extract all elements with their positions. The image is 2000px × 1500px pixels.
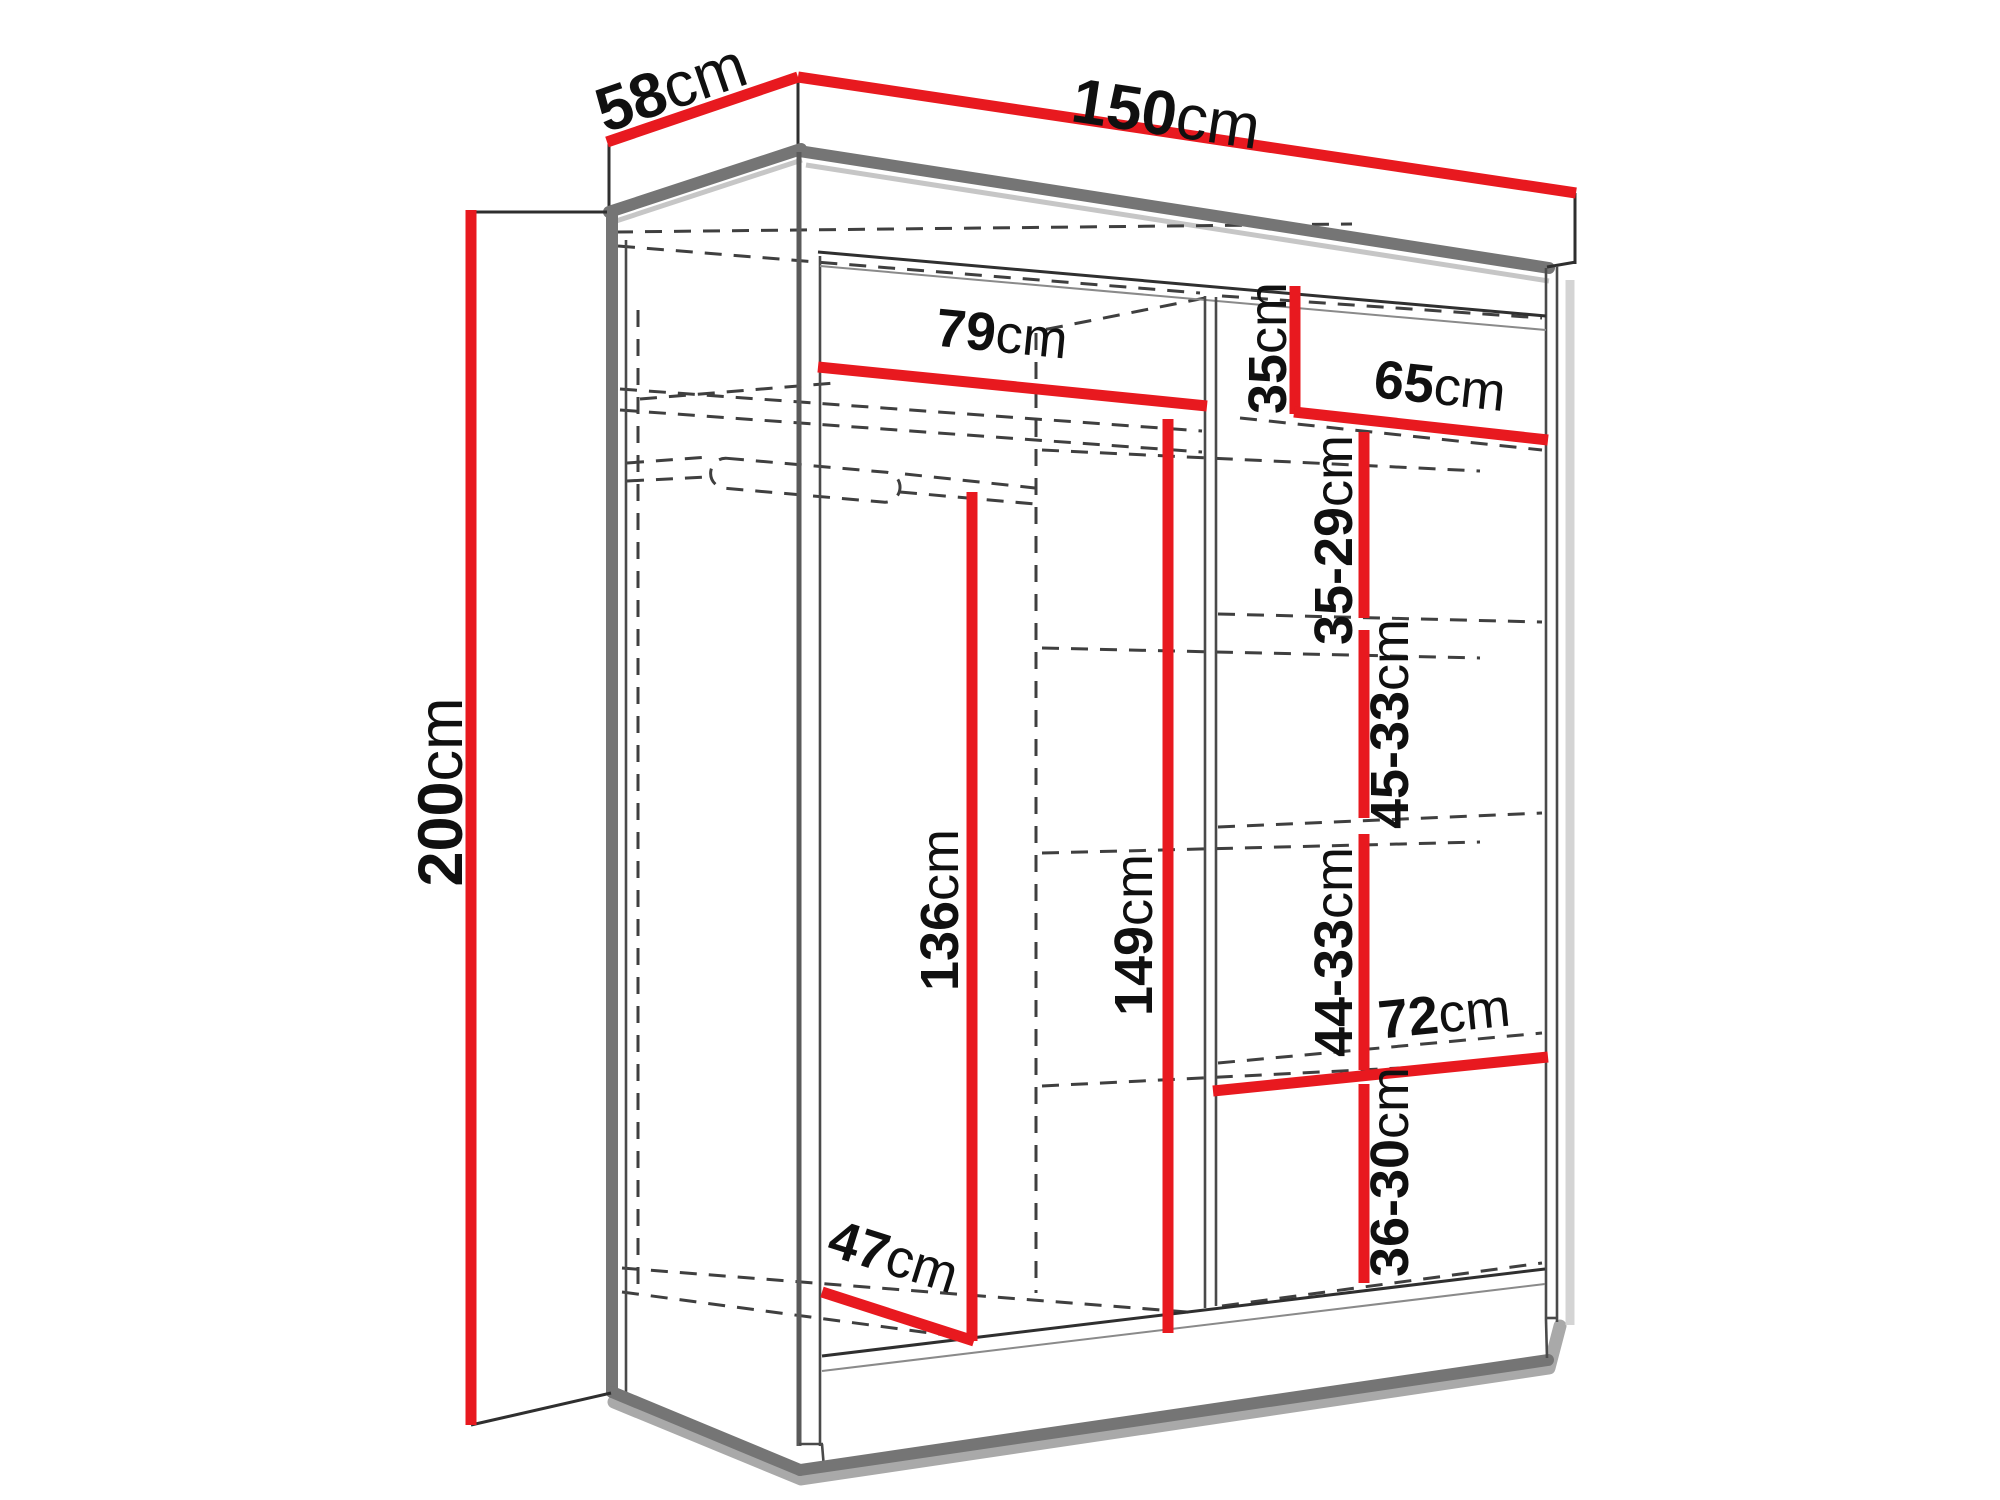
left-section-width-label: 79cm (933, 298, 1070, 371)
top-right-compartment-height-label: 35cm (1238, 282, 1298, 414)
dimension-line-bottom-left-depth (822, 1292, 974, 1341)
height-extension-bottom (471, 1393, 611, 1425)
right-shelf-spacing-3-label: 44-33cm (1304, 847, 1364, 1057)
slab-bottom-left-edge (609, 149, 801, 212)
right-plinth-notch-drop (1546, 1320, 1547, 1358)
depth-label: 58cm (587, 30, 755, 146)
wardrobe-structure (609, 77, 1576, 1470)
right-shelf-spacing-1-label: 35-29cm (1304, 435, 1364, 645)
dimension-line-left-section-width (818, 367, 1207, 406)
top-slab-shadow-front (806, 165, 1549, 281)
width-label: 150cm (1067, 65, 1264, 162)
hanging-rail-left-extension-bottom (627, 477, 708, 481)
hanging-space-height-label: 136cm (910, 829, 970, 991)
wardrobe-dimension-diagram: 58cm 150cm 200cm 79cm 35cm 65cm 35-29cm … (0, 0, 2000, 1500)
interior-top-edge-inner (820, 266, 1546, 330)
left-bottom-edge (612, 1392, 800, 1470)
floor-corner-edge-left (622, 1292, 968, 1338)
right-shelf1-back-edge (1042, 450, 1480, 471)
front-bottom-edge (800, 1360, 1548, 1470)
left-shelf-bottom-edge (620, 410, 1202, 452)
right-shelf-spacing-4-label: 36-30cm (1360, 1067, 1420, 1277)
dimension-labels: 58cm 150cm 200cm 79cm 35cm 65cm 35-29cm … (406, 30, 1513, 1305)
right-section-width-label: 65cm (1371, 349, 1509, 423)
diagram-canvas: 58cm 150cm 200cm 79cm 35cm 65cm 35-29cm … (0, 0, 2000, 1500)
top-slab-shadow-left (613, 160, 802, 222)
bottom-right-shelf-width-label: 72cm (1375, 978, 1512, 1051)
left-section-height-label: 149cm (1104, 854, 1164, 1016)
ceiling-front-edge-left (618, 246, 1200, 293)
right-shelf3-back-edge (1042, 842, 1480, 853)
height-label: 200cm (406, 697, 476, 886)
hanging-rail-right-extension-top (905, 474, 1035, 488)
bottom-left-shelf-depth-label: 47cm (821, 1208, 965, 1305)
right-shelf-spacing-2-label: 45-33cm (1360, 619, 1420, 829)
hanging-rail (709, 457, 901, 503)
